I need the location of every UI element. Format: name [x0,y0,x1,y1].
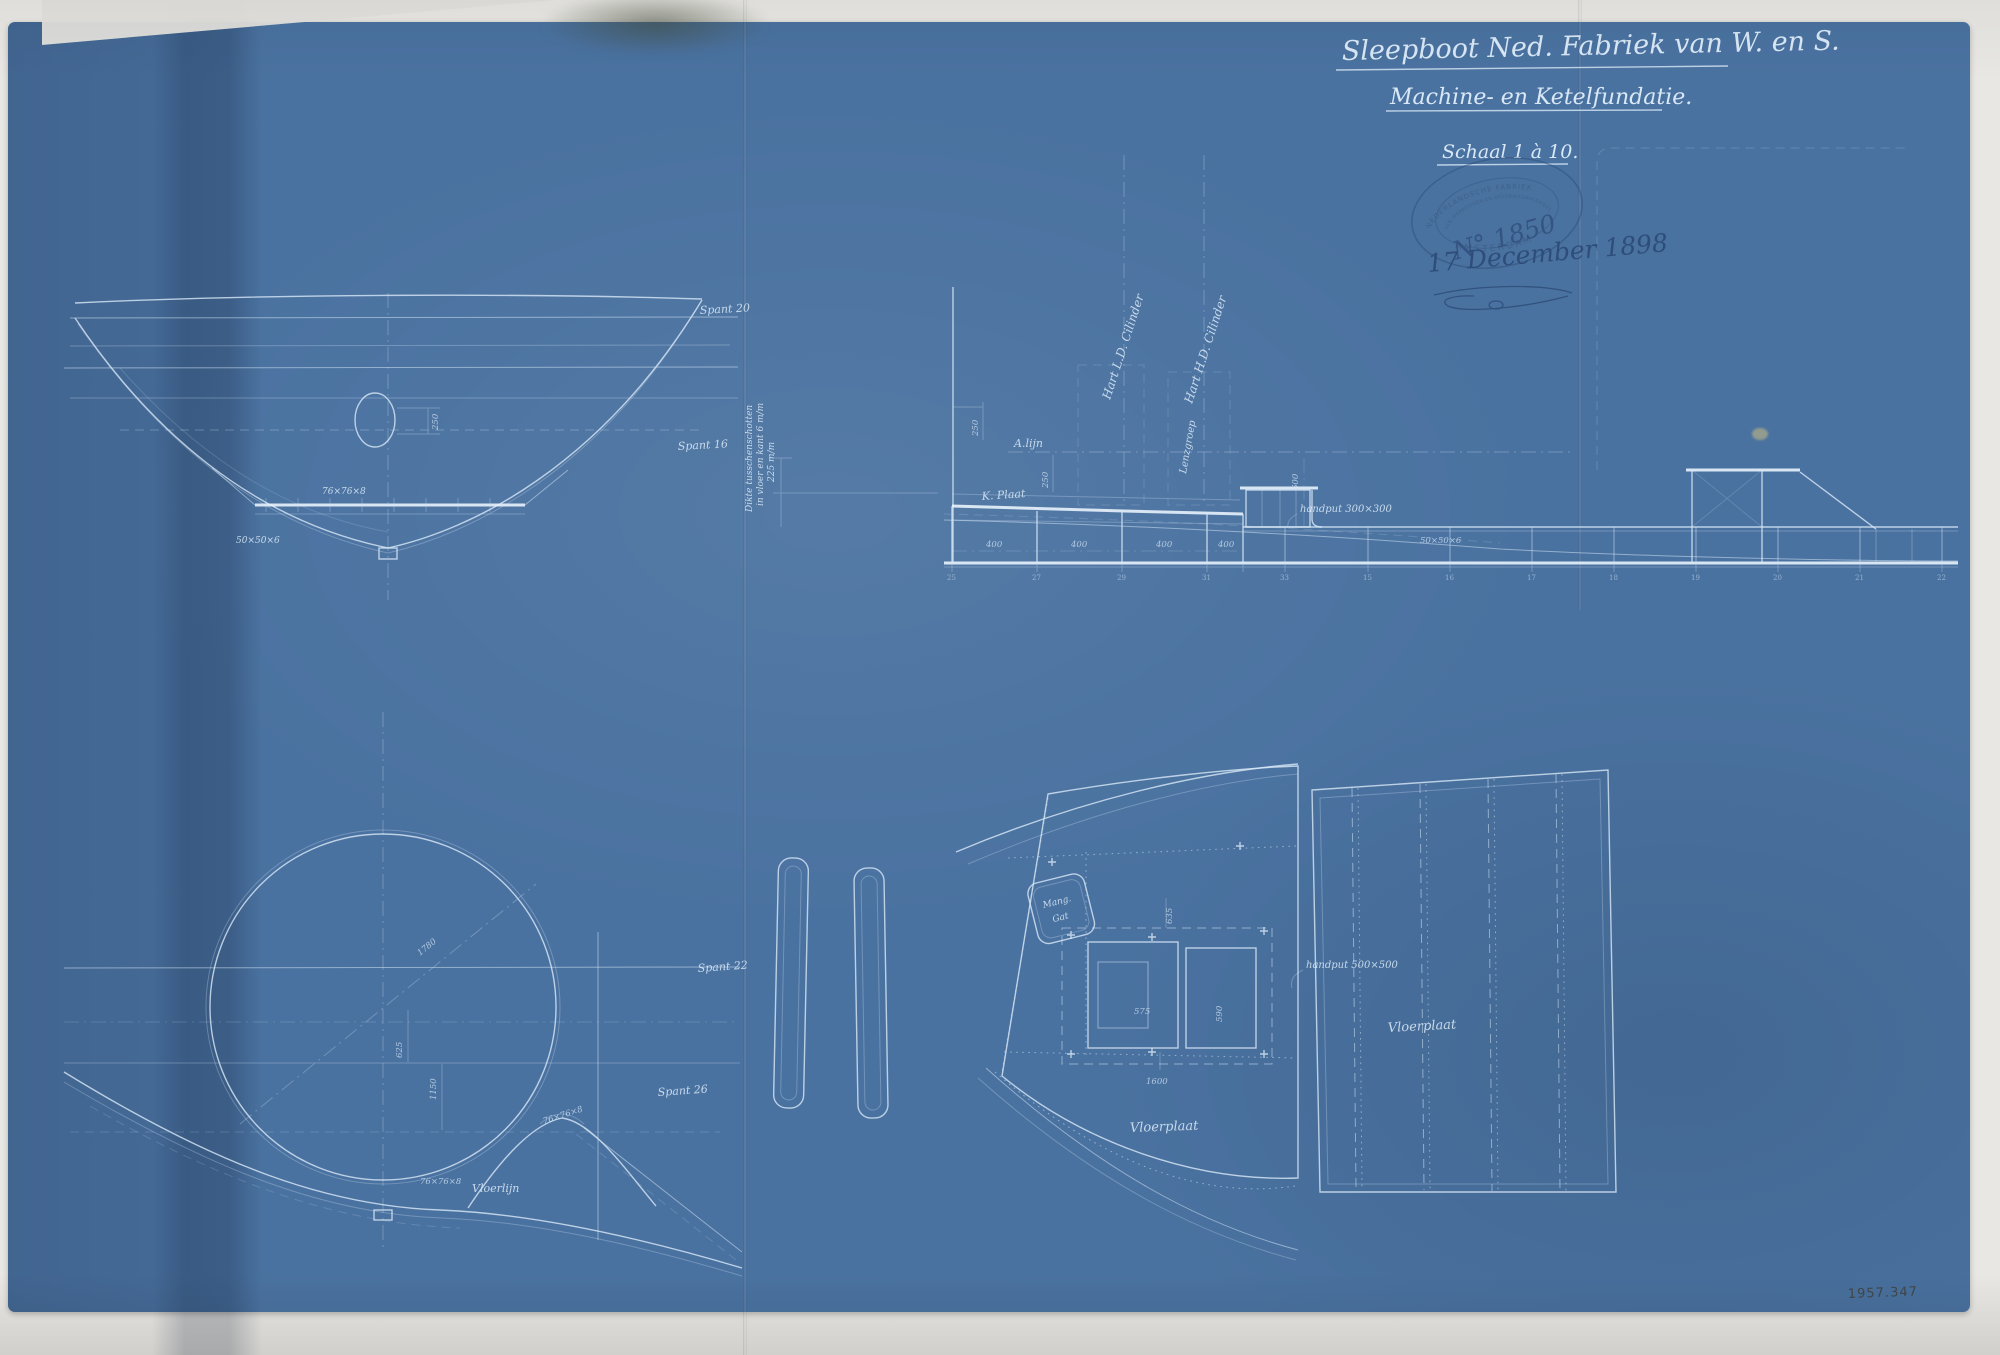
engine-foundation-girder [952,506,1243,514]
seating-pad-inner [1098,962,1148,1028]
frame-number: 27 [1032,574,1041,582]
a-line-label: A.lijn [1013,437,1043,450]
frame-number: 17 [1527,574,1536,582]
boiler-outline [1597,148,1905,470]
diameter-label: 1780 [416,937,440,959]
view-elevation: 250 Hart L.D. Cilinder Hart H.D. C [745,148,1958,582]
dim-label: 250 [971,419,981,437]
title-block: Sleepboot Ned. Fabriek van W. en S. Mach… [1336,26,1840,165]
mangat-inner [1032,878,1091,940]
bracket-dashed [90,1106,736,1260]
handput-leader [1291,970,1303,988]
drawing-title: Sleepboot Ned. Fabriek van W. en S. [1341,26,1840,67]
side-note-line: in vloer en kant 6 m/m [756,403,766,506]
handput-label: handput 300×300 [1300,504,1392,515]
dim-label: 590 [1215,1005,1225,1022]
bay-dim: 400 [1155,540,1173,550]
drawing-layer: Sleepboot Ned. Fabriek van W. en S. Mach… [0,0,2000,1355]
profile-label: 76×76×8 [322,487,366,497]
frame-curve [120,368,388,532]
hull-curve-port-inner [78,324,388,553]
strip-outline [773,858,808,1109]
title-underline [1336,66,1728,70]
spant-label: Spant 20 [699,301,750,317]
foundation-frames [952,506,1243,563]
frame-number: 33 [1280,574,1289,582]
plate-rivet-lines [1358,774,1566,1191]
subtitle-underline [1386,110,1662,111]
bolt-crosses [1048,842,1268,1058]
frame-number: 25 [947,574,956,582]
frame-number: 19 [1691,574,1700,582]
archive-number: 1957.347 [1848,1285,1919,1302]
frame-number: 29 [1117,574,1126,582]
sheer-curve-inner [968,774,1298,864]
frame-number: 16 [1445,574,1454,582]
plate-strip [854,868,888,1118]
dim-label: 250 [431,413,441,431]
view-body-section: 250 Spant 20 Spant 16 76×76×8 50×50×6 [64,293,750,600]
dim-label: 635 [1165,908,1175,924]
forward-stub-frame [770,458,938,527]
view-boiler-section: 1780 Spant 22 Spant 26 625 1150 76×76×8 … [64,712,748,1276]
seating-pad [1186,948,1256,1048]
bottom-outer-curve-inner [978,1078,1296,1260]
profile-label: 50×50×6 [1420,536,1462,546]
frame-number: 22 [1937,574,1946,582]
waterline [70,317,738,318]
frame-number: 31 [1202,574,1211,582]
waterline [64,967,740,968]
hull-bottom-curve [64,1072,742,1268]
dim-lines [408,1010,442,1130]
profile-label: 50×50×6 [236,536,280,546]
vloerplaat-label: Vloerplaat [1130,1119,1200,1136]
band-frames [1285,527,1942,563]
pedestal-aft-legs [1876,529,1912,563]
foundation-plan-outline [1002,766,1298,1178]
signature-flourish [1434,286,1572,309]
sheer-curve [956,764,1298,852]
floor-plate-outline [1312,770,1616,1192]
diameter-line [240,884,536,1124]
seating-ribs [1262,490,1296,527]
view-plan: Mang. Gat 635 575 590 1600 handput 500×5… [956,764,1616,1260]
lenzgroep-label: Lenzgroep [1178,419,1198,475]
centerline-label: Hart L.D. Cilinder [1099,291,1147,402]
plate-strip [773,858,808,1109]
bottom-outer-curve [986,1068,1298,1250]
vloerlijn-label: Vloerlijn [472,1182,519,1195]
spant-label: Spant 22 [697,959,748,975]
mangat-label: Gat [1052,911,1070,925]
floor-plate-inner [1320,779,1608,1184]
manhole-ellipse [355,393,395,447]
dim-label: 1150 [429,1078,439,1100]
profile-label: 76×76×8 [420,1177,462,1187]
scanned-blueprint-page: Sleepboot Ned. Fabriek van W. en S. Mach… [0,0,2000,1355]
strip-inner [861,876,881,1110]
dim-label: 1600 [1146,1077,1168,1087]
strip-inner [781,866,802,1100]
bay-dim: 400 [985,540,1003,550]
aft-pedestal [1686,470,1912,563]
bay-dim: 400 [1217,540,1235,550]
spant-label: Spant 26 [657,1083,708,1099]
dim-label: 625 [395,1042,405,1058]
k-plaat-label: K. Plaat [980,487,1026,503]
side-note: Dikte tusschenschotten in vloer en kant … [745,403,777,513]
side-note-line: 225 m/m [767,442,777,483]
seating-pad [1088,942,1178,1048]
frame-number: 20 [1773,574,1782,582]
dim-label: 575 [1134,1007,1150,1017]
mangat-label: Mang. [1041,894,1073,911]
handput-label: handput 500×500 [1306,960,1398,971]
dim-label: 600 [1291,473,1301,490]
side-note-line: Dikte tusschenschotten [745,405,755,513]
frame-number: 18 [1609,574,1618,582]
drawing-subtitle: Machine- en Ketelfundatie. [1389,85,1692,110]
drawing-scale: Schaal 1 à 10. [1442,141,1578,163]
hull-bottom-dashed [944,514,1500,543]
waterline [70,345,730,346]
bay-dim: 400 [1070,540,1088,550]
vloerplaat-label: Vloerplaat [1387,1017,1457,1036]
frame-number: 21 [1855,574,1864,582]
waterline [64,367,738,368]
view-plate-strips [773,858,888,1119]
pedestal-bracing [1692,470,1762,527]
frame-number: 15 [1363,574,1372,582]
plate-frame-lines [1352,774,1560,1191]
pedestal-slope [1800,472,1876,529]
strip-outline [854,868,888,1118]
spant-label: Spant 16 [677,437,728,453]
dim-label: 250 [1041,471,1051,489]
centerline-label: Hart H.D. Cilinder [1181,293,1230,406]
